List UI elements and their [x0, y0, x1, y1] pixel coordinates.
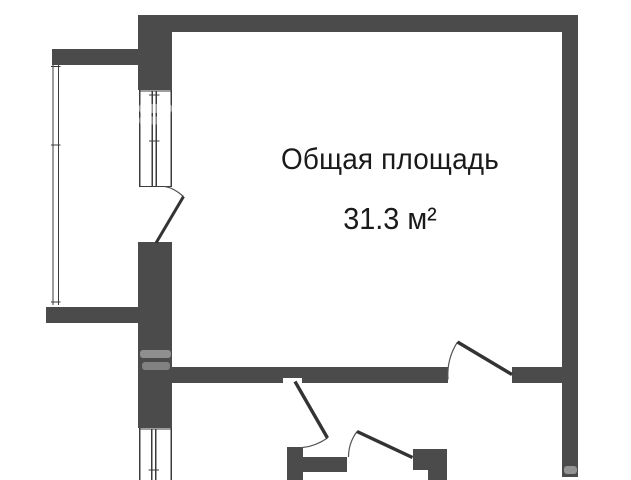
floor-plan-drawing — [0, 0, 631, 480]
area-label-title: Общая площадь — [251, 143, 530, 177]
entry-wall-block-ext — [428, 470, 447, 480]
top-wall — [138, 15, 578, 32]
balcony-railing — [51, 65, 61, 305]
room-door — [448, 342, 512, 380]
balcony-door — [156, 187, 184, 244]
right-wall — [562, 15, 578, 477]
watermark-blob — [139, 104, 172, 113]
door-leaf — [357, 432, 413, 458]
entry-wall-block — [413, 449, 447, 470]
balcony-top-wall — [52, 49, 138, 65]
door-leaf — [156, 197, 184, 244]
kitchen-window — [140, 428, 172, 480]
bathroom-wall-post — [287, 447, 303, 480]
door-jamb-notch — [283, 378, 302, 384]
left-wall-mid — [138, 242, 172, 428]
watermark-blob — [140, 350, 171, 358]
door-leaf — [458, 342, 513, 375]
area-label: Общая площадь 31.3 м² — [251, 143, 530, 237]
door-swing-arc — [448, 342, 458, 380]
floor-plan: Общая площадь 31.3 м² — [0, 0, 631, 480]
door-swing-arc — [349, 432, 358, 458]
kitchen-door — [295, 382, 328, 448]
door-swing-arc — [165, 187, 184, 197]
interior-walls — [172, 367, 562, 480]
watermark-blob — [564, 466, 577, 474]
hallway-wall-right — [512, 367, 562, 383]
bathroom-door — [349, 432, 413, 458]
area-label-value: 31.3 м² — [251, 201, 530, 237]
watermark-blob — [139, 117, 167, 125]
door-swing-arc — [303, 438, 328, 448]
balcony-bottom-wall — [46, 307, 140, 323]
door-leaf — [295, 382, 328, 439]
left-wall-upper — [138, 15, 172, 90]
bathroom-wall-bottom — [303, 457, 347, 472]
hallway-wall-left — [172, 367, 448, 383]
watermark-blob — [142, 362, 170, 370]
